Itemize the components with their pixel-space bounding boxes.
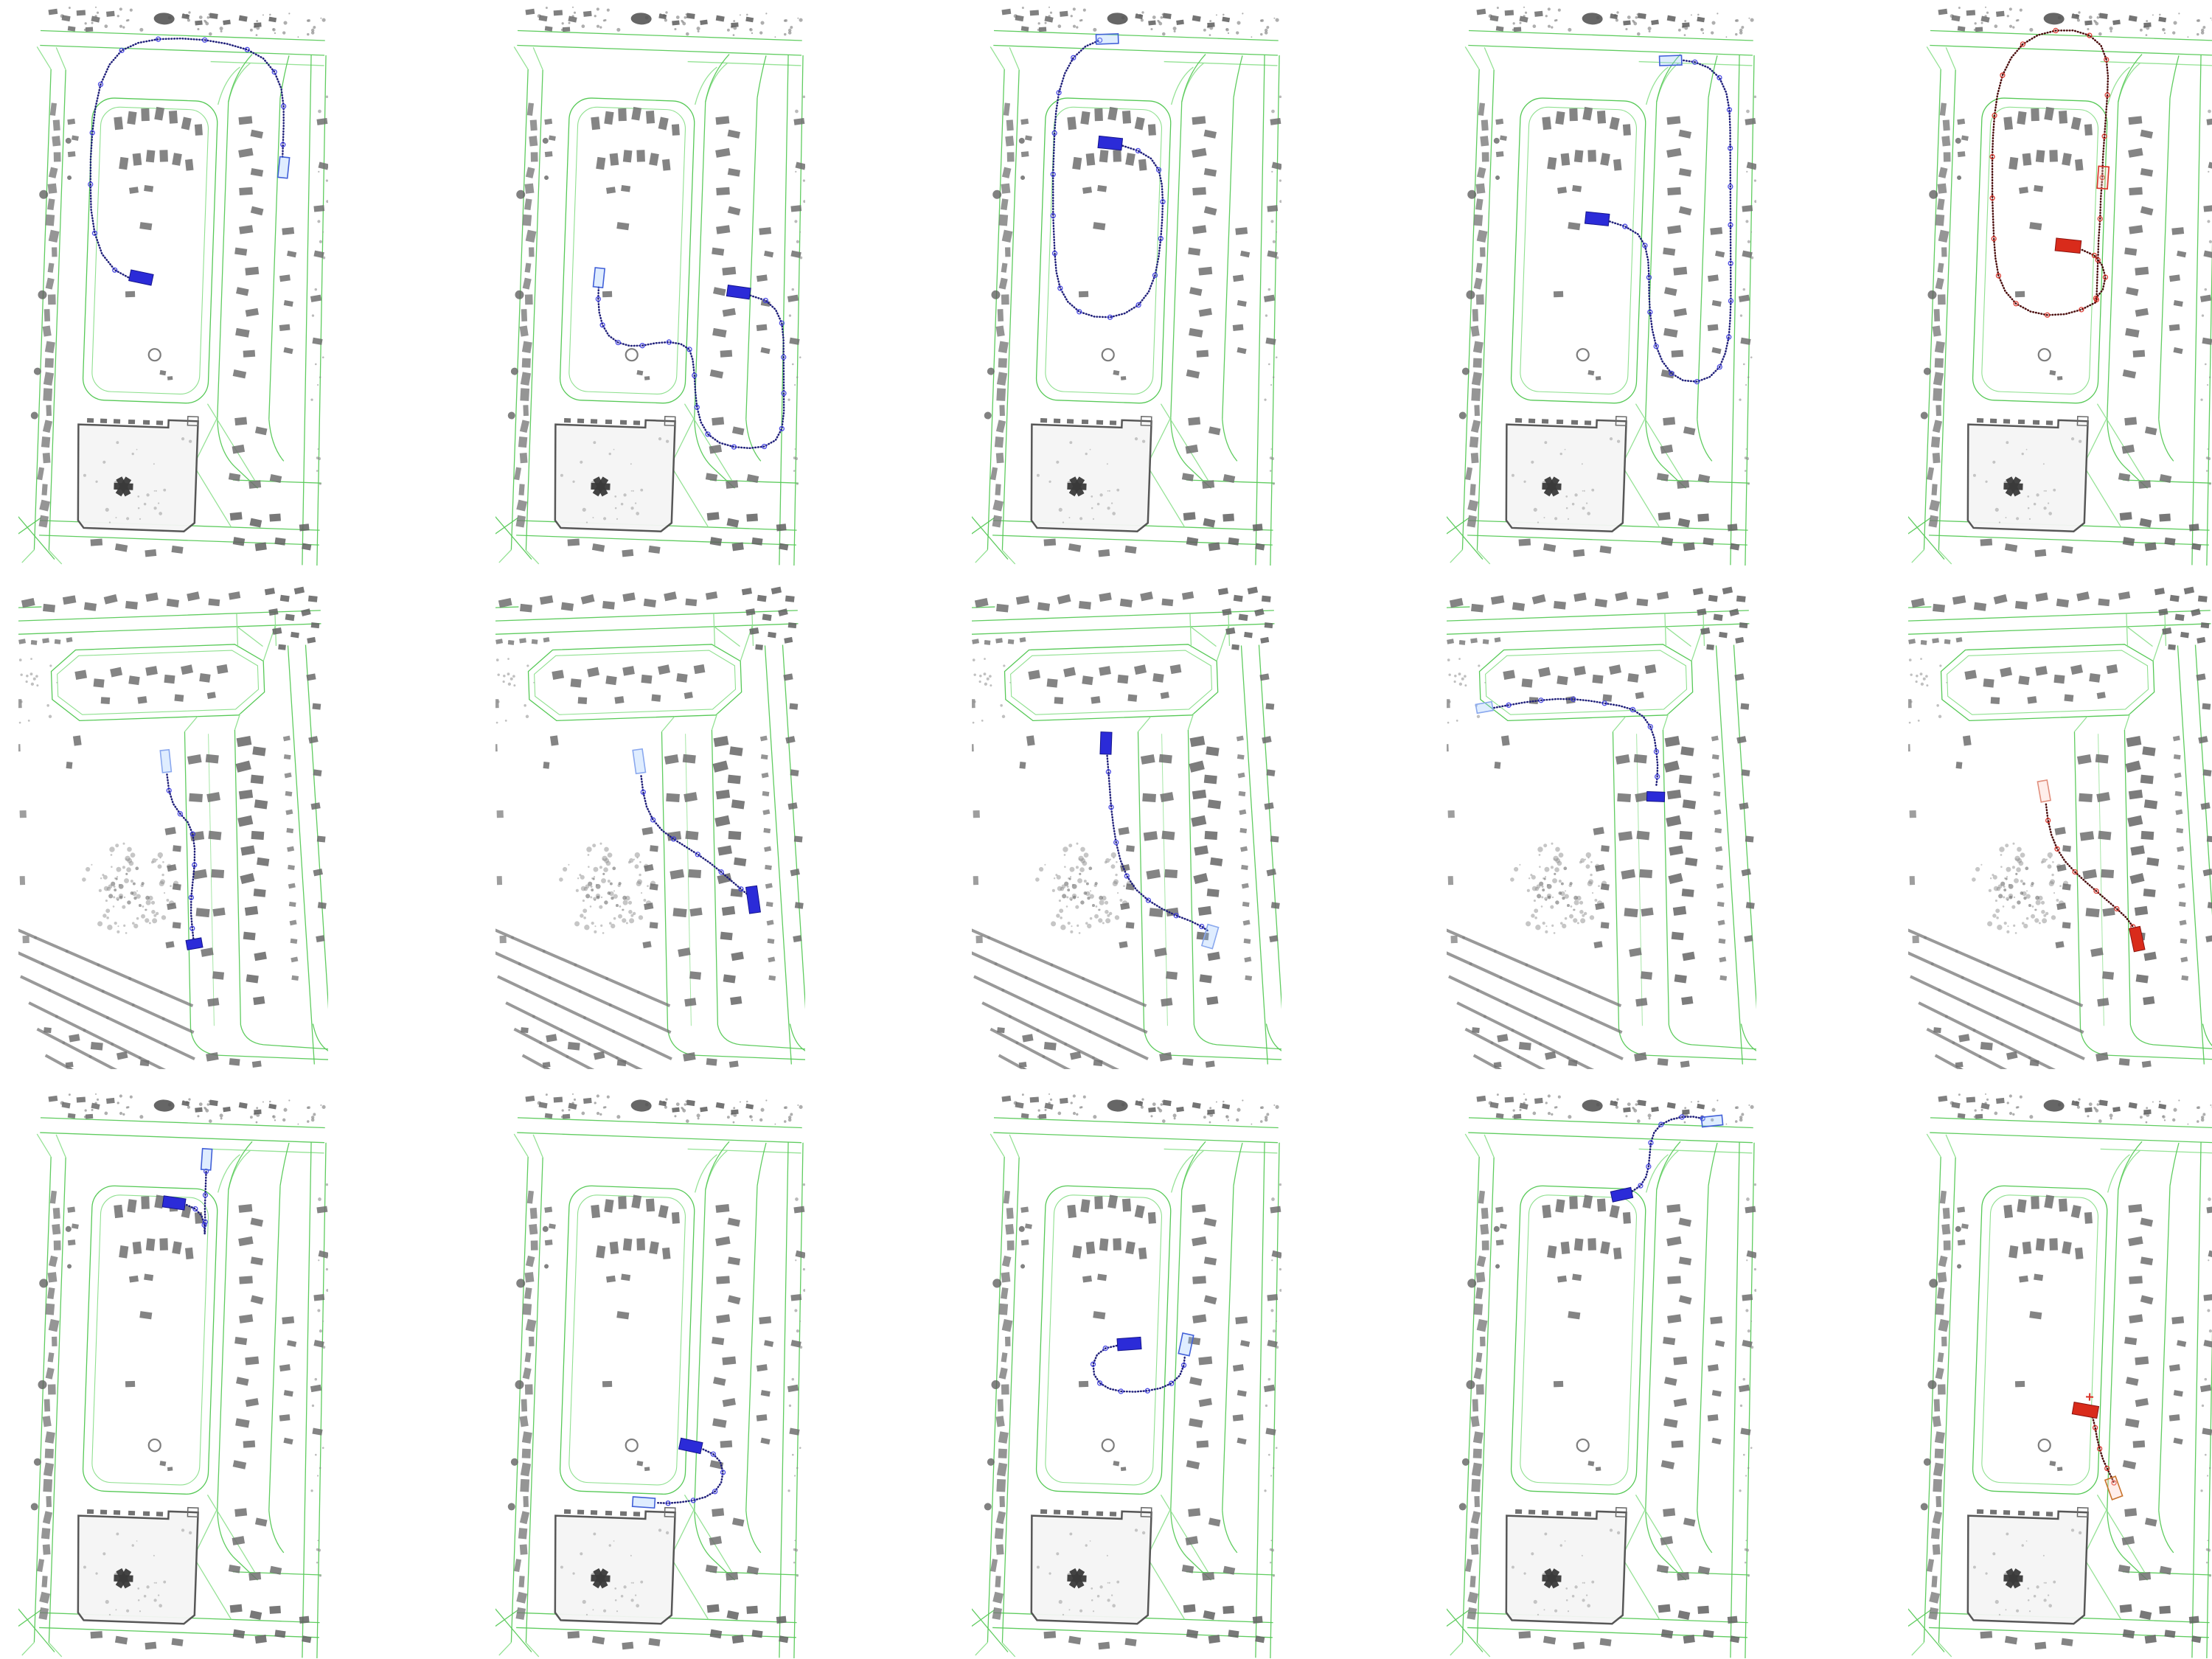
panel-r3c4 — [1447, 1093, 1756, 1659]
map-svg — [1447, 6, 1756, 566]
trajectory-path — [1632, 1115, 1703, 1194]
target-box — [201, 1149, 212, 1170]
trajectory-path — [1048, 39, 1169, 319]
vehicle-box — [746, 886, 761, 914]
panel-r1c5 — [1908, 6, 2212, 566]
panel-r2c5 — [1908, 586, 2212, 1069]
map-svg — [1908, 586, 2212, 1069]
panel-r2c2 — [495, 586, 805, 1069]
map-svg — [1447, 1093, 1756, 1659]
map-svg — [495, 1093, 805, 1659]
target-box — [1475, 702, 1493, 714]
vehicle-box — [2072, 1402, 2098, 1419]
trajectory-path — [1494, 695, 1658, 793]
panel-r3c2 — [495, 1093, 805, 1659]
vehicle-box — [129, 270, 153, 285]
target-box — [278, 157, 290, 178]
vehicle-box — [1610, 1187, 1632, 1202]
map-svg — [972, 6, 1281, 566]
vehicle-box — [162, 1196, 186, 1210]
target-box — [633, 749, 645, 773]
map-svg — [1908, 6, 2212, 566]
trajectory-path — [2090, 1417, 2116, 1483]
vehicle-box — [726, 285, 751, 299]
map-svg — [495, 586, 805, 1069]
map-svg — [495, 6, 805, 566]
map-svg — [972, 586, 1281, 1069]
panel-r3c3 — [972, 1093, 1281, 1659]
figure-grid — [0, 0, 2212, 1659]
vehicle-box — [1646, 791, 1664, 801]
panel-r1c2 — [495, 6, 805, 566]
target-box — [1178, 1333, 1193, 1356]
map-svg — [1908, 1093, 2212, 1659]
vehicle-box — [2055, 238, 2081, 253]
target-box — [633, 1497, 655, 1508]
panel-r1c3 — [972, 6, 1281, 566]
target-box — [160, 750, 171, 773]
trajectory-path — [1092, 1345, 1185, 1394]
panel-r3c1 — [18, 1093, 328, 1659]
target-box — [1701, 1115, 1722, 1127]
vehicle-box — [1585, 212, 1609, 226]
target-box — [1660, 55, 1682, 66]
map-svg — [18, 1093, 328, 1659]
map-svg — [972, 1093, 1281, 1659]
vehicle-box — [1100, 732, 1112, 755]
panel-r2c4 — [1447, 586, 1756, 1069]
panel-r1c1 — [18, 6, 328, 566]
target-box — [2037, 780, 2051, 802]
vehicle-box — [1098, 136, 1122, 150]
target-box — [2097, 166, 2109, 189]
trajectory-path — [1987, 28, 2114, 317]
map-svg — [1447, 586, 1756, 1069]
vehicle-box — [2129, 926, 2145, 951]
map-svg — [18, 6, 328, 566]
panel-r3c5 — [1908, 1093, 2212, 1659]
vehicle-box — [679, 1438, 703, 1453]
panel-r1c4 — [1447, 6, 1756, 566]
map-svg — [18, 586, 328, 1069]
vehicle-box — [1117, 1337, 1141, 1350]
trajectory-path — [186, 1171, 207, 1234]
target-box — [1096, 34, 1118, 44]
target-box — [594, 268, 605, 288]
panel-r2c1 — [18, 586, 328, 1069]
panel-r2c3 — [972, 586, 1281, 1069]
